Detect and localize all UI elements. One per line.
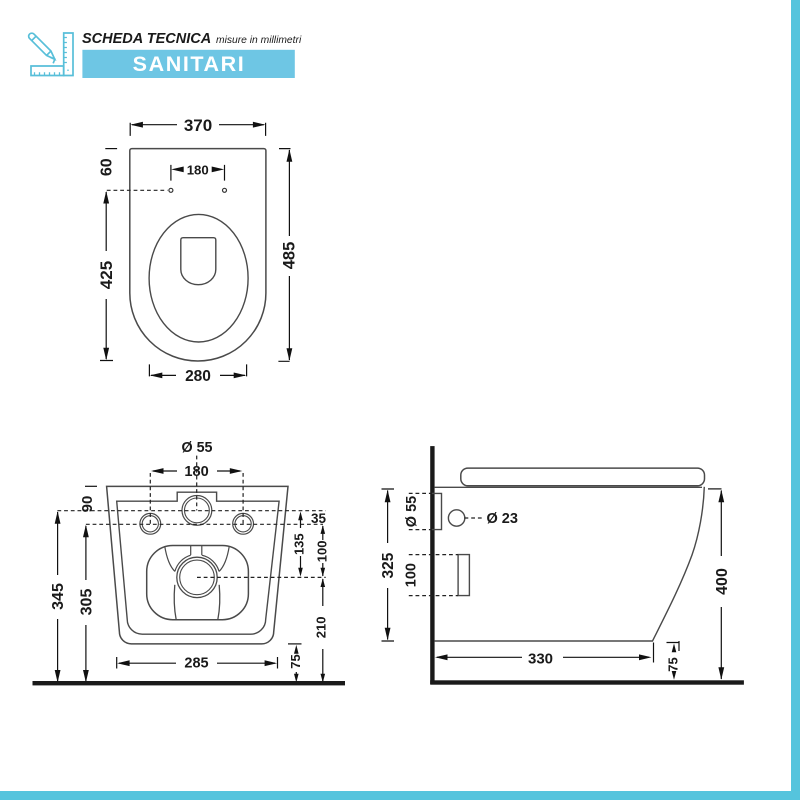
svg-text:Ø 55: Ø 55	[182, 440, 213, 456]
svg-text:100: 100	[403, 563, 419, 587]
svg-text:75: 75	[666, 657, 681, 671]
svg-text:305: 305	[78, 589, 95, 616]
svg-text:100: 100	[315, 541, 330, 563]
svg-text:misure in millimetri: misure in millimetri	[216, 35, 302, 46]
svg-text:60: 60	[99, 158, 116, 176]
svg-text:325: 325	[380, 552, 397, 578]
svg-text:400: 400	[714, 568, 731, 595]
svg-text:135: 135	[292, 533, 307, 555]
svg-text:210: 210	[313, 617, 328, 639]
svg-text:180: 180	[187, 163, 209, 178]
svg-text:485: 485	[281, 242, 299, 270]
svg-text:75: 75	[288, 654, 303, 668]
svg-text:SANITARI: SANITARI	[133, 52, 246, 76]
svg-text:180: 180	[184, 464, 208, 480]
svg-text:330: 330	[528, 651, 553, 668]
svg-text:Ø 23: Ø 23	[487, 511, 518, 527]
svg-text:285: 285	[184, 655, 208, 671]
svg-text:SCHEDA TECNICA: SCHEDA TECNICA	[82, 31, 211, 47]
svg-text:35: 35	[311, 511, 327, 526]
svg-text:280: 280	[185, 368, 211, 385]
svg-text:345: 345	[50, 583, 67, 610]
svg-text:425: 425	[97, 261, 116, 289]
svg-text:370: 370	[184, 116, 212, 135]
svg-text:90: 90	[79, 496, 96, 513]
svg-text:Ø 55: Ø 55	[404, 496, 420, 527]
